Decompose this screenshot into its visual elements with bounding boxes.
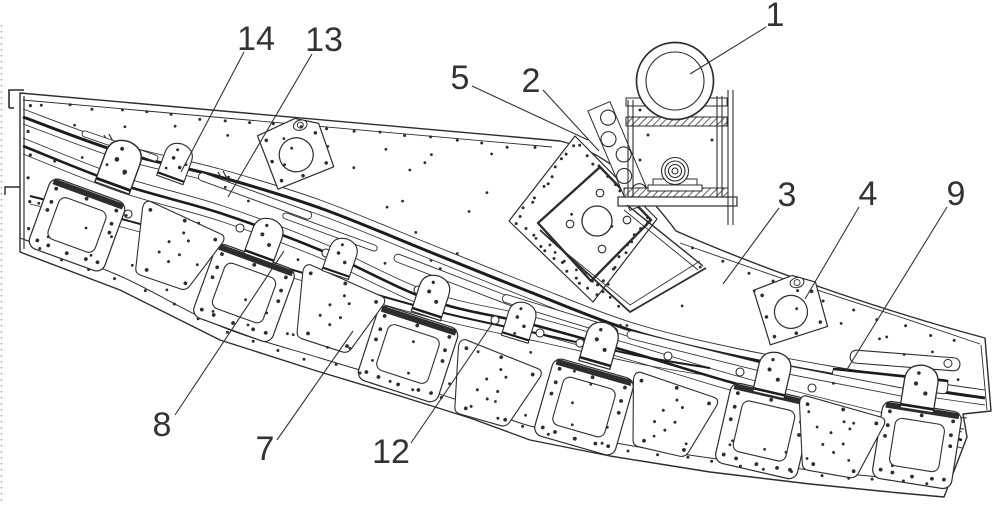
vibrating-screen-technical-drawing: 12345789121314 — [0, 0, 1000, 508]
access-panel — [714, 382, 814, 481]
callout-label-4: 4 — [859, 175, 878, 213]
callout-label-14: 14 — [237, 20, 275, 58]
callout-label-13: 13 — [305, 21, 343, 59]
callout-label-12: 12 — [372, 433, 410, 471]
callout-label-9: 9 — [947, 175, 966, 213]
callout-label-3: 3 — [778, 176, 797, 214]
access-panel — [871, 400, 962, 490]
patent-figure-page: 12345789121314 — [0, 0, 1000, 508]
callout-label-1: 1 — [766, 0, 785, 34]
callout-label-5: 5 — [451, 59, 470, 97]
callout-label-2: 2 — [522, 62, 541, 100]
callout-label-7: 7 — [256, 430, 275, 468]
callout-leader-4 — [805, 207, 859, 299]
callout-label-8: 8 — [153, 406, 172, 444]
callout-leader-1 — [690, 27, 766, 74]
